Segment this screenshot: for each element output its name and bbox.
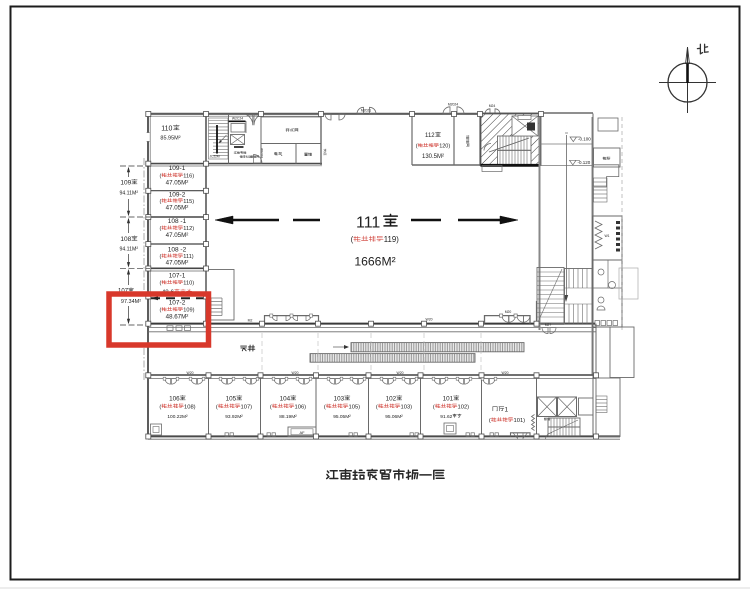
- svg-text:M2: M2: [248, 319, 253, 323]
- svg-text:95.06M²: 95.06M²: [385, 414, 403, 420]
- svg-text:109-2: 109-2: [169, 191, 186, 198]
- svg-text:M2024: M2024: [448, 103, 458, 107]
- svg-text:W20: W20: [426, 318, 433, 322]
- svg-text:(: (: [216, 404, 218, 410]
- svg-text:120): 120): [439, 144, 450, 150]
- svg-text:111: 111: [356, 215, 380, 232]
- svg-text:47.05M²: 47.05M²: [166, 232, 189, 239]
- svg-text:97.34M²: 97.34M²: [121, 299, 141, 305]
- svg-text:106): 106): [295, 404, 307, 410]
- svg-text:-0.120: -0.120: [578, 160, 591, 165]
- svg-text:108 -2: 108 -2: [168, 247, 187, 254]
- svg-text:108 -1: 108 -1: [168, 218, 187, 225]
- svg-text:M2?: M2?: [545, 323, 552, 327]
- svg-text:109: 109: [120, 180, 131, 187]
- svg-text:(: (: [489, 418, 491, 424]
- svg-text:1: 1: [505, 407, 509, 414]
- svg-text:(: (: [433, 404, 435, 410]
- svg-text:47.05M²: 47.05M²: [166, 204, 189, 211]
- svg-text:109-1: 109-1: [169, 165, 186, 172]
- svg-text:W20: W20: [187, 371, 194, 375]
- svg-text:130.5M²: 130.5M²: [422, 154, 444, 160]
- svg-text:107-2: 107-2: [169, 300, 186, 307]
- svg-text:M20: M20: [505, 310, 512, 314]
- svg-text:105): 105): [349, 404, 361, 410]
- svg-text:102: 102: [386, 396, 397, 403]
- svg-text:119): 119): [384, 235, 399, 244]
- svg-text:(: (: [159, 404, 161, 410]
- svg-text:100.22M²: 100.22M²: [167, 414, 188, 420]
- svg-text:W1: W1: [604, 234, 609, 238]
- svg-text:(: (: [159, 226, 161, 232]
- svg-text:(: (: [416, 144, 418, 150]
- svg-text:93.92M²: 93.92M²: [225, 414, 243, 420]
- svg-text:95.05M²: 95.05M²: [333, 414, 351, 420]
- svg-text:1666M²: 1666M²: [354, 255, 395, 269]
- svg-text:W1C02: W1C02: [260, 148, 264, 158]
- svg-text:102): 102): [458, 404, 470, 410]
- svg-text:104: 104: [280, 396, 291, 403]
- svg-text:112: 112: [425, 133, 435, 139]
- svg-text:W2C24: W2C24: [232, 117, 243, 121]
- svg-text:107): 107): [241, 404, 253, 410]
- svg-text:103): 103): [401, 404, 413, 410]
- svg-text:105: 105: [226, 396, 237, 403]
- svg-text:110): 110): [183, 281, 194, 287]
- svg-text:AF: AF: [299, 430, 305, 435]
- svg-text:(: (: [159, 173, 161, 179]
- svg-text:(: (: [159, 254, 161, 260]
- svg-text:94.11M²: 94.11M²: [119, 247, 138, 253]
- svg-text:94.11M²: 94.11M²: [119, 191, 138, 197]
- svg-text:(: (: [159, 199, 161, 205]
- svg-text:108): 108): [184, 404, 196, 410]
- svg-text:(: (: [351, 235, 354, 244]
- svg-text:47.05M²: 47.05M²: [166, 260, 189, 267]
- svg-text:106: 106: [169, 396, 180, 403]
- svg-text:(: (: [376, 404, 378, 410]
- svg-text:W20: W20: [502, 371, 509, 375]
- svg-text:(: (: [159, 281, 161, 287]
- svg-text:91.62: 91.62: [440, 414, 452, 420]
- svg-text:(: (: [324, 404, 326, 410]
- svg-text:(: (: [270, 404, 272, 410]
- svg-text:47.05M²: 47.05M²: [166, 179, 189, 186]
- svg-text:85.95M²: 85.95M²: [160, 136, 180, 142]
- svg-text:M24: M24: [489, 104, 496, 108]
- svg-text:JC22M: JC22M: [209, 155, 219, 159]
- svg-text:-0.100: -0.100: [578, 137, 591, 142]
- svg-text:W20: W20: [292, 371, 299, 375]
- svg-text:88.19M²: 88.19M²: [279, 414, 297, 420]
- svg-text:103: 103: [334, 396, 345, 403]
- svg-text:M2021: M2021: [361, 109, 371, 113]
- svg-text:110: 110: [161, 126, 172, 133]
- svg-text:101): 101): [514, 418, 526, 424]
- svg-text:108: 108: [120, 236, 131, 243]
- svg-text:101: 101: [443, 396, 454, 403]
- svg-text:48.67M²: 48.67M²: [166, 314, 189, 321]
- svg-text:W20: W20: [397, 371, 404, 375]
- svg-text:107-1: 107-1: [169, 273, 186, 280]
- svg-text:(: (: [159, 308, 161, 314]
